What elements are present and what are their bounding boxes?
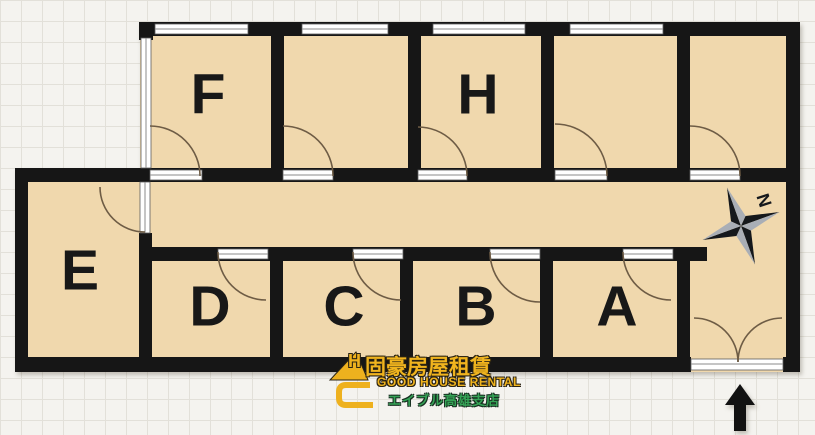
room-label-f: F — [191, 67, 226, 124]
room-label-c: C — [323, 279, 364, 336]
floor-plan-canvas: F H E D C B A N H 固豪房屋租賃 GOOD HOUSE RENT… — [0, 0, 815, 435]
room-label-a: A — [596, 279, 637, 336]
entrance-arrow-icon — [725, 384, 755, 431]
room-label-h: H — [457, 67, 498, 124]
logo-monogram: H — [348, 351, 361, 372]
brand-logo: H 固豪房屋租賃 GOOD HOUSE RENTAL エイブル高雄支店 — [322, 346, 522, 410]
logo-branch-jp: エイブル高雄支店 — [388, 390, 500, 409]
room-label-e: E — [61, 243, 99, 300]
room-label-b: B — [455, 279, 496, 336]
logo-name-en: GOOD HOUSE RENTAL — [377, 375, 521, 389]
room-label-d: D — [189, 279, 230, 336]
